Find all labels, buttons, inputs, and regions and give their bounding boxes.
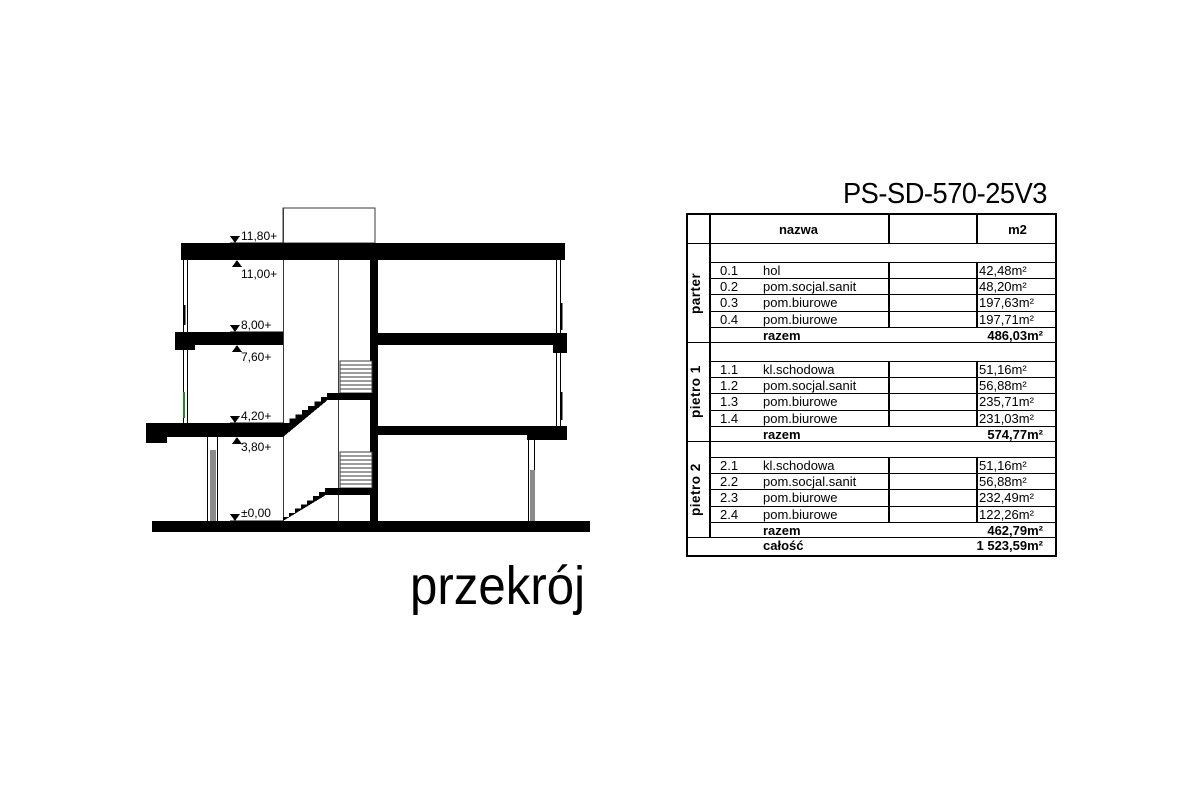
total-row: całość 1 523,59m² [688, 538, 1055, 553]
subtotal-row: razem 486,03m² [709, 327, 1055, 343]
room-no: 2.2 [720, 474, 738, 489]
table-row: 1.1 kl.schodowa 51,16m² [709, 361, 1055, 377]
room-no: 0.4 [720, 312, 738, 327]
drawing-number: PS-SD-570-25V3 [670, 179, 1047, 210]
total-label: całość [763, 538, 803, 554]
floor-label-pietro-1: pietro 1 [688, 343, 709, 441]
room-area: 197,63m² [979, 295, 1034, 310]
elevation-0-00: ±0,00 [241, 506, 271, 520]
room-no: 0.3 [720, 295, 738, 310]
room-area: 235,71m² [979, 394, 1034, 409]
room-area: 48,20m² [979, 279, 1027, 294]
room-name: pom.biurowe [763, 411, 837, 426]
drawing-caption: przekrój [410, 556, 585, 616]
room-name: pom.socjal.sanit [763, 474, 856, 489]
table-row: 1.4 pom.biurowe 231,03m² [709, 410, 1055, 426]
room-area: 51,16m² [979, 458, 1027, 473]
elevation-7-60: 7,60+ [241, 350, 271, 364]
room-area: 231,03m² [979, 411, 1034, 426]
room-name: pom.biurowe [763, 394, 837, 409]
room-area: 197,71m² [979, 312, 1034, 327]
table-header: nazwa m2 [688, 215, 1055, 244]
stairs-upper [283, 361, 373, 437]
table-row: 2.3 pom.biurowe 232,49m² [709, 489, 1055, 505]
room-area: 122,26m² [979, 507, 1034, 522]
subtotal-area: 462,79m² [987, 523, 1043, 538]
total-area: 1 523,59m² [977, 538, 1044, 554]
table-section-pietro-2: pietro 2 2.1 kl.schodowa 51,16m² 2.2 pom… [688, 442, 1055, 538]
elevation-markers: 11,80+ 11,00+ 8,00+ 7,60+ 4,20+ 3,80+ ±0… [230, 229, 283, 521]
ground-floor-glazing-left [208, 437, 218, 521]
room-no: 0.2 [720, 279, 738, 294]
area-table: nazwa m2 parter 0.1 hol 42,48m² 0.2 pom.… [686, 213, 1057, 557]
table-row: 0.3 pom.biurowe 197,63m² [709, 294, 1055, 310]
table-row: 0.2 pom.socjal.sanit 48,20m² [709, 278, 1055, 294]
subtotal-row: razem 574,77m² [709, 426, 1055, 442]
room-area: 232,49m² [979, 490, 1034, 505]
room-name: kl.schodowa [763, 458, 835, 473]
room-no: 2.3 [720, 490, 738, 505]
room-no: 2.1 [720, 458, 738, 473]
subtotal-row: razem 462,79m² [709, 522, 1055, 538]
table-section-pietro-1: pietro 1 1.1 kl.schodowa 51,16m² 1.2 pom… [688, 343, 1055, 442]
table-row: 2.2 pom.socjal.sanit 56,88m² [709, 473, 1055, 489]
room-name: hol [763, 263, 780, 278]
room-area: 56,88m² [979, 378, 1027, 393]
table-row: 1.3 pom.biurowe 235,71m² [709, 393, 1055, 409]
ground-floor-glazing-right [529, 440, 536, 521]
elevation-3-80: 3,80+ [241, 440, 271, 454]
elevation-4-20: 4,20+ [241, 409, 271, 423]
room-name: kl.schodowa [763, 362, 835, 377]
room-area: 56,88m² [979, 474, 1027, 489]
room-name: pom.biurowe [763, 312, 837, 327]
subtotal-area: 574,77m² [987, 427, 1043, 442]
subtotal-label: razem [763, 523, 801, 538]
table-row: 1.2 pom.socjal.sanit 56,88m² [709, 377, 1055, 393]
room-area: 42,48m² [979, 263, 1027, 278]
room-name: pom.biurowe [763, 490, 837, 505]
subtotal-label: razem [763, 328, 801, 343]
room-name: pom.biurowe [763, 507, 837, 522]
room-no: 1.2 [720, 378, 738, 393]
room-no: 2.4 [720, 507, 738, 522]
table-row: 2.1 kl.schodowa 51,16m² [709, 457, 1055, 473]
header-m2: m2 [976, 215, 1059, 244]
stairs-lower [283, 452, 372, 521]
floor-slab-1 [146, 423, 567, 443]
room-name: pom.socjal.sanit [763, 378, 856, 393]
page: 11,80+ 11,00+ 8,00+ 7,60+ 4,20+ 3,80+ ±0… [0, 0, 1200, 800]
ground-slab [152, 521, 590, 532]
table-section-parter: parter 0.1 hol 42,48m² 0.2 pom.socjal.sa… [688, 244, 1055, 343]
subtotal-label: razem [763, 427, 801, 442]
elevation-11-80: 11,80+ [241, 229, 277, 243]
room-name: pom.socjal.sanit [763, 279, 856, 294]
room-no: 1.3 [720, 394, 738, 409]
elevation-11-00: 11,00+ [241, 267, 277, 281]
room-name: pom.biurowe [763, 295, 837, 310]
room-area: 51,16m² [979, 362, 1027, 377]
header-nazwa: nazwa [709, 215, 888, 244]
subtotal-area: 486,03m² [987, 328, 1043, 343]
table-row: 0.4 pom.biurowe 197,71m² [709, 311, 1055, 327]
table-row: 0.1 hol 42,48m² [709, 262, 1055, 278]
room-no: 1.1 [720, 362, 738, 377]
roof-slab [181, 243, 565, 260]
header-divider [888, 215, 890, 244]
room-no: 0.1 [720, 263, 738, 278]
roof-shaft-outline [283, 208, 375, 243]
floor-label-parter: parter [688, 244, 709, 342]
room-no: 1.4 [720, 411, 738, 426]
elevation-8-00: 8,00+ [241, 318, 271, 332]
building-section-drawing: 11,80+ 11,00+ 8,00+ 7,60+ 4,20+ 3,80+ ±0… [140, 200, 610, 625]
floor-label-pietro-2: pietro 2 [688, 442, 709, 537]
table-row: 2.4 pom.biurowe 122,26m² [709, 506, 1055, 522]
